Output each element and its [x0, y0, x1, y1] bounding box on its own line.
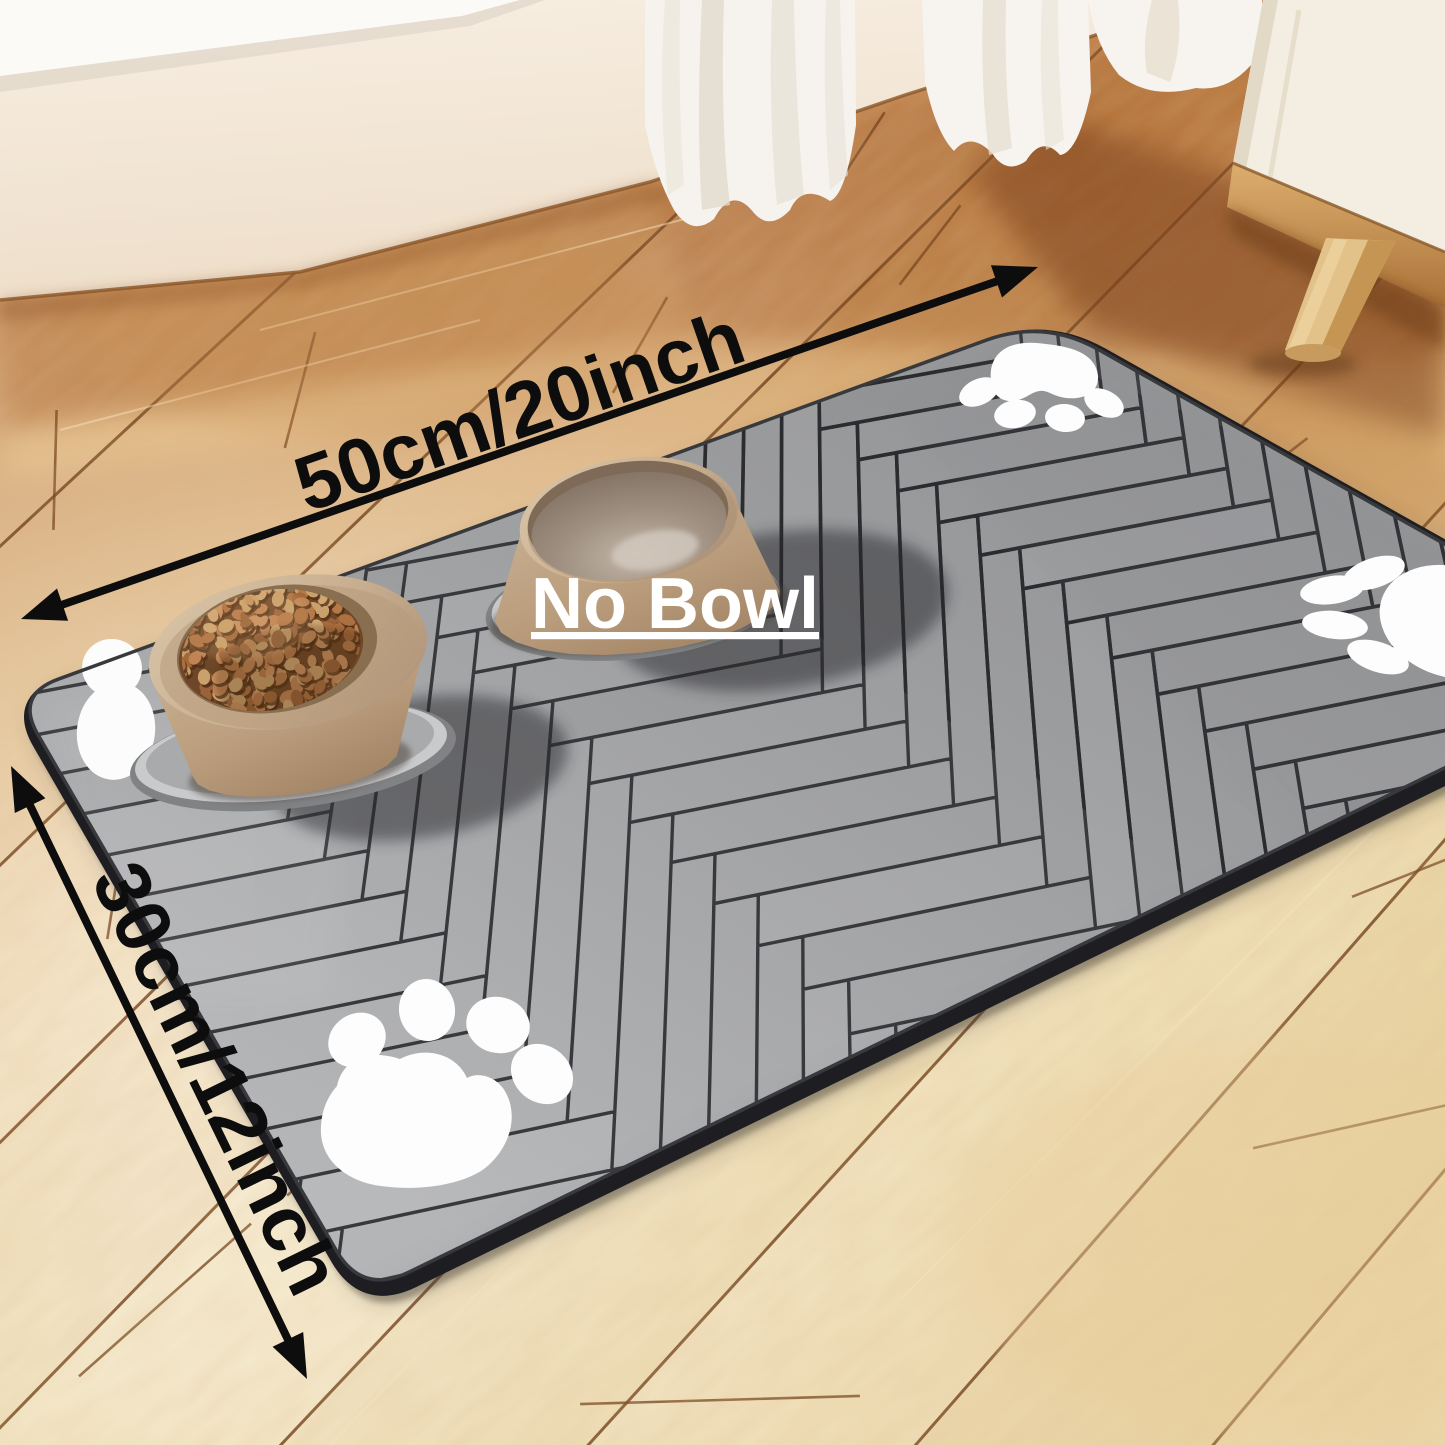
svg-text:No Bowl: No Bowl [531, 564, 819, 644]
